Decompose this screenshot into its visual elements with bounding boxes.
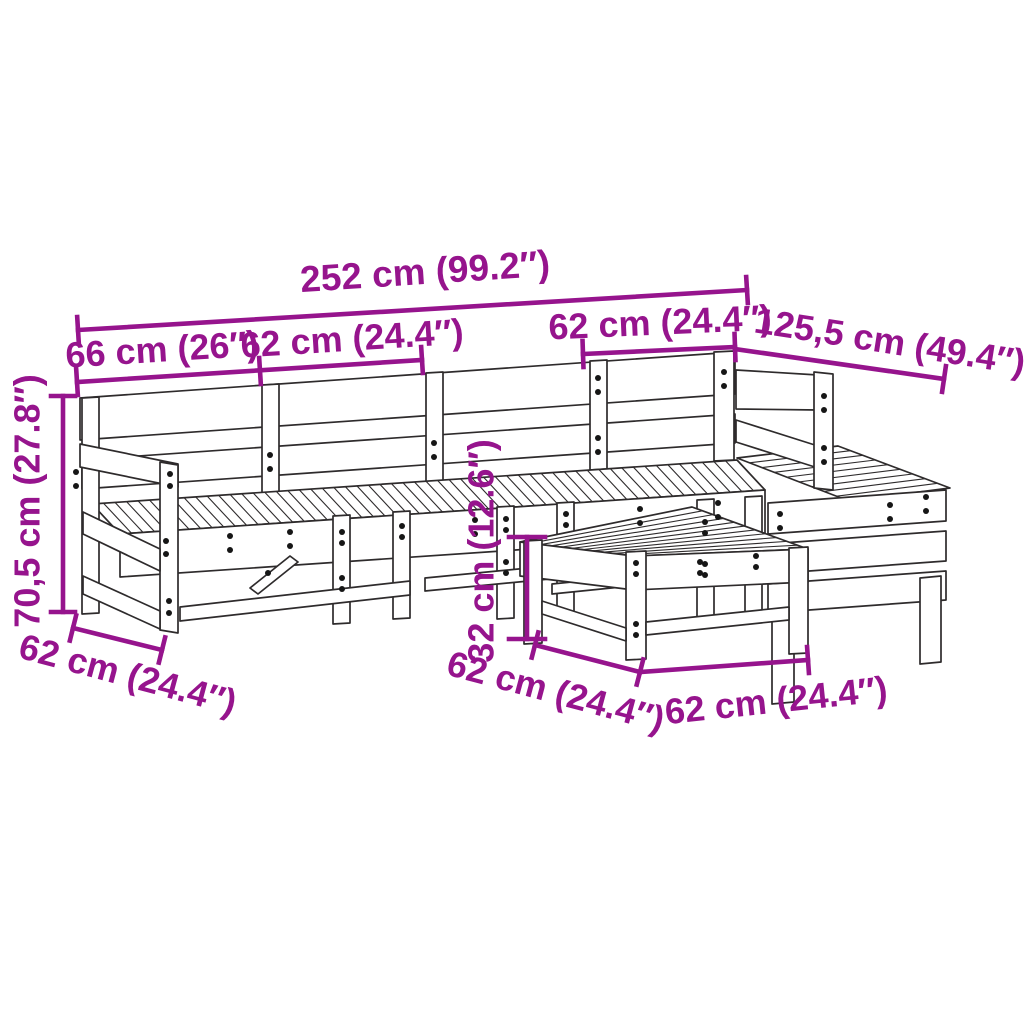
dimension-footstool-height-label: 32 cm (12.6″)	[461, 439, 502, 662]
dimension-back-height: 70,5 cm (27.8″)	[7, 374, 75, 627]
dimension-back-height-label: 70,5 cm (27.8″)	[7, 374, 48, 627]
dimension-total-width-label: 252 cm (99.2″)	[299, 243, 551, 300]
dimension-left-side-depth: 62 cm (24.4″)	[15, 615, 241, 722]
garden-sofa-set-drawing: 252 cm (99.2″) 66 cm (26″) 62 cm (24.4″)…	[0, 0, 1024, 1024]
dimension-corner-module-label: 62 cm (24.4″)	[548, 297, 773, 348]
product-dimension-diagram: 252 cm (99.2″) 66 cm (26″) 62 cm (24.4″)…	[0, 0, 1024, 1024]
dimension-footstool-width: 62 cm (24.4″)	[640, 647, 889, 732]
